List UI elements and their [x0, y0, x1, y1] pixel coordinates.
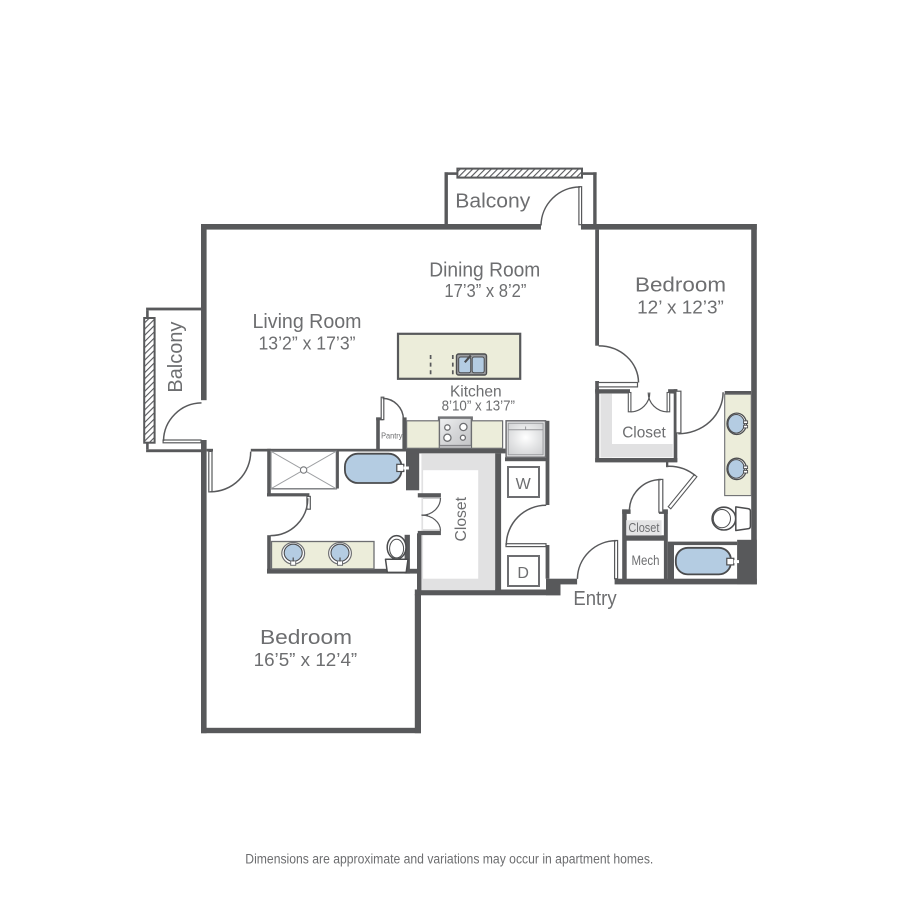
- svg-text:Mech: Mech: [632, 552, 660, 568]
- svg-text:13’2” x 17’3”: 13’2” x 17’3”: [259, 334, 356, 354]
- svg-text:12’ x 12’3”: 12’ x 12’3”: [637, 297, 724, 317]
- svg-text:D: D: [517, 565, 529, 582]
- svg-text:Bedroom: Bedroom: [260, 627, 352, 649]
- svg-text:Living Room: Living Room: [253, 311, 362, 333]
- svg-text:Bedroom: Bedroom: [635, 274, 726, 296]
- svg-text:16’5” x 12’4”: 16’5” x 12’4”: [254, 650, 358, 670]
- svg-text:Dining Room: Dining Room: [429, 260, 540, 282]
- svg-text:Closet: Closet: [628, 521, 659, 535]
- svg-text:W: W: [516, 476, 532, 493]
- svg-text:17’3” x 8’2”: 17’3” x 8’2”: [444, 281, 526, 301]
- svg-text:Entry: Entry: [573, 588, 616, 610]
- svg-text:Balcony: Balcony: [455, 190, 530, 212]
- svg-text:Balcony: Balcony: [165, 322, 187, 393]
- svg-text:Pantry: Pantry: [381, 431, 403, 441]
- svg-text:Dimensions are approximate and: Dimensions are approximate and variation…: [245, 852, 653, 867]
- svg-text:Closet: Closet: [622, 425, 666, 442]
- svg-text:Closet: Closet: [453, 496, 470, 541]
- svg-text:8’10” x 13’7”: 8’10” x 13’7”: [442, 398, 515, 415]
